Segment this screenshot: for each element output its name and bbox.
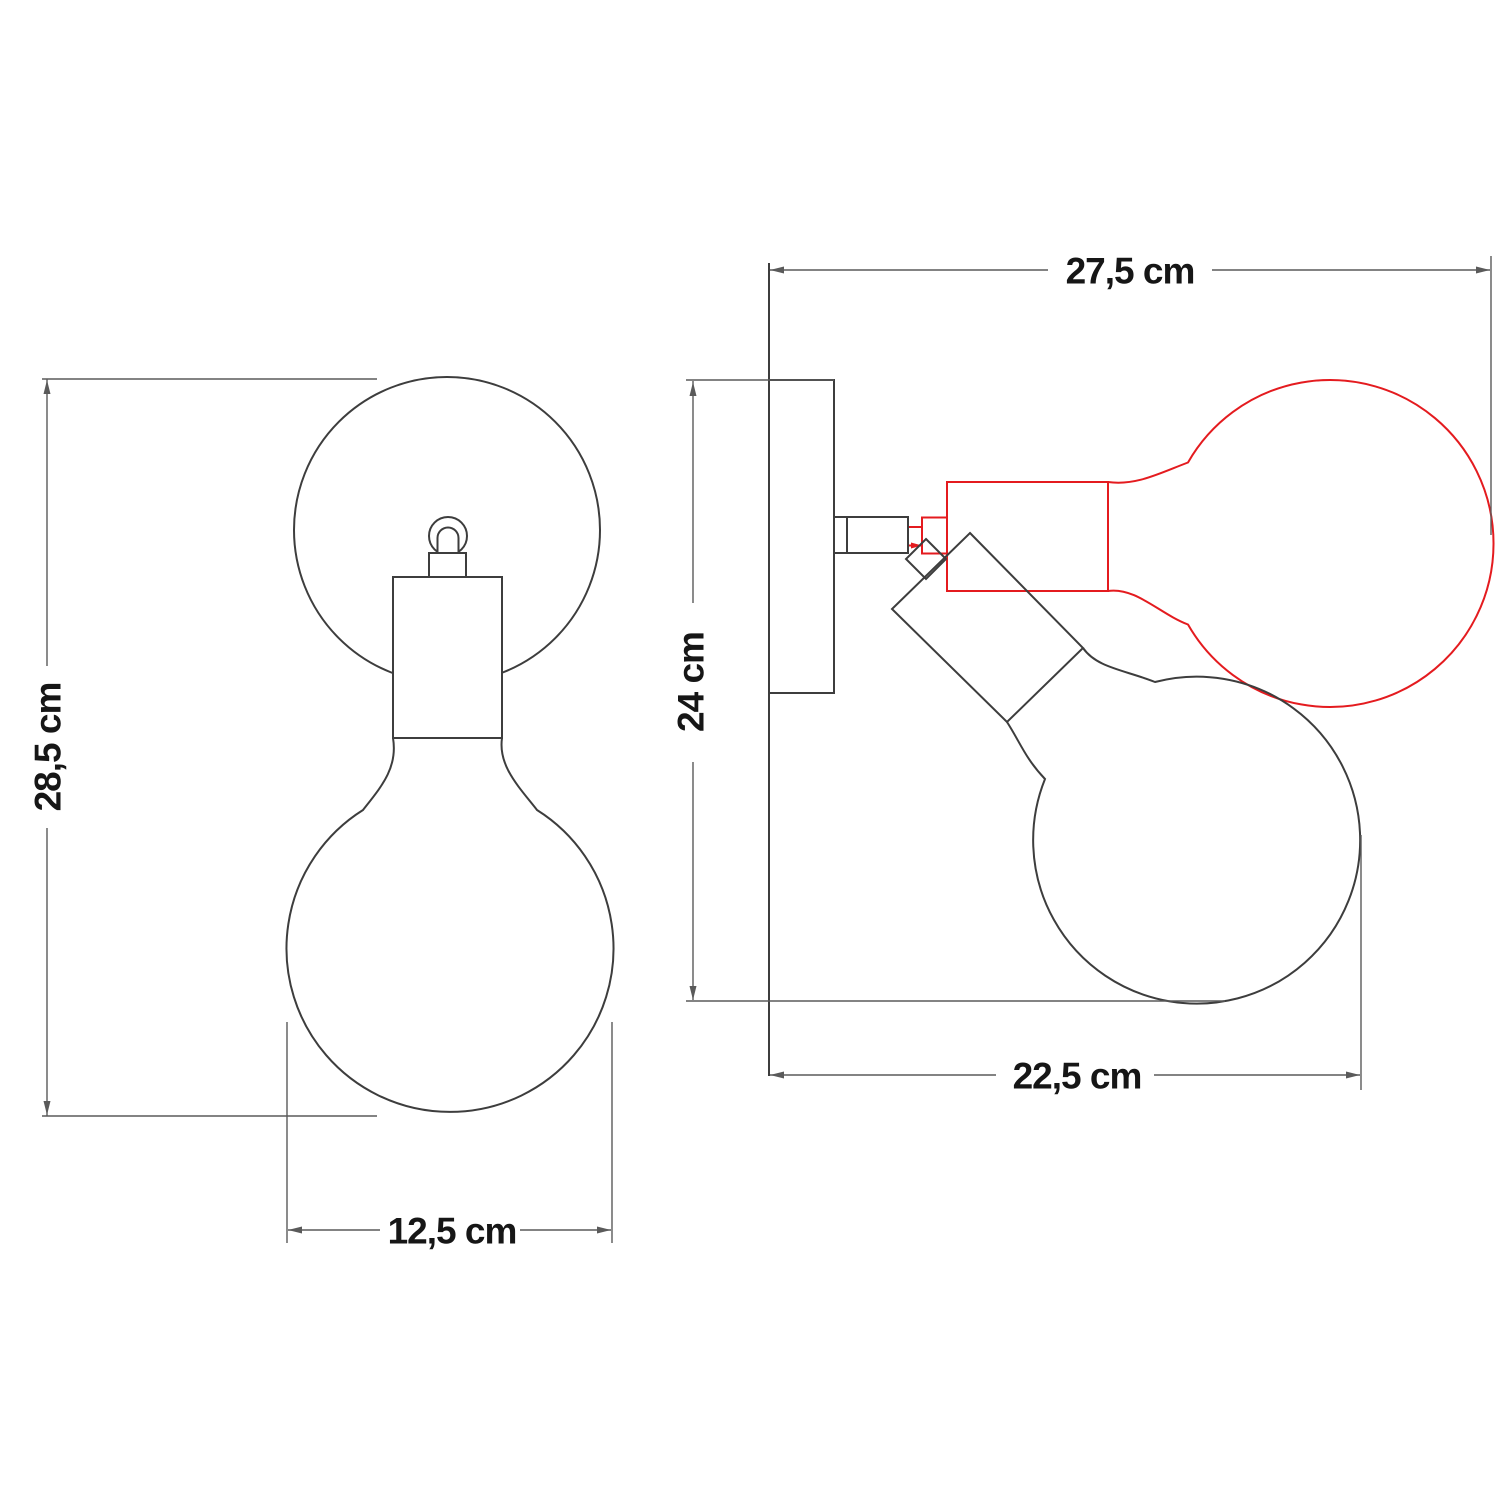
side-view-alt-position: [908, 380, 1494, 707]
dimensions: [42, 256, 1491, 1243]
alt-globe-bulb-side: [1108, 380, 1494, 707]
arrow-left-icon: [770, 1072, 784, 1079]
alt-socket-side: [947, 482, 1108, 591]
pivot-arm-side: [834, 517, 908, 553]
lamp-socket-front: [393, 577, 502, 738]
label-front-width: 12,5 cm: [388, 1211, 517, 1252]
arrow-down-icon: [44, 1101, 51, 1115]
label-front-height: 28,5 cm: [28, 683, 69, 812]
tilted-socket-side: [892, 533, 1083, 722]
arrow-right-icon: [1476, 267, 1490, 274]
front-view: [287, 377, 614, 1112]
arrow-right-icon: [597, 1227, 611, 1234]
lamp-dimension-drawing: 27,5 cm 24 cm 22,5 cm 28,5 cm 12,5 cm: [0, 0, 1500, 1500]
arrow-up-icon: [44, 380, 51, 394]
wall-plate-side: [769, 380, 834, 693]
dimension-front-height: [42, 379, 377, 1116]
dimension-labels: 27,5 cm 24 cm 22,5 cm 28,5 cm 12,5 cm: [28, 251, 1195, 1252]
globe-bulb-front: [287, 738, 614, 1112]
side-view: [769, 263, 1360, 1076]
arrow-up-icon: [690, 382, 697, 396]
arrow-right-icon: [1346, 1072, 1360, 1079]
alt-pivot-link-lines: [908, 527, 922, 546]
arrow-left-icon: [770, 267, 784, 274]
label-side-width: 27,5 cm: [1066, 251, 1195, 292]
dimension-side-height: [686, 380, 1225, 1001]
globe-bulb-side: [1007, 648, 1360, 1004]
dimension-side-width: [770, 256, 1491, 535]
arrow-left-icon: [288, 1227, 302, 1234]
socket-cap-front: [429, 553, 466, 577]
label-side-depth: 22,5 cm: [1013, 1056, 1142, 1097]
dimension-side-depth: [770, 835, 1361, 1090]
label-side-height: 24 cm: [671, 632, 712, 732]
dimension-drawing-page: 27,5 cm 24 cm 22,5 cm 28,5 cm 12,5 cm: [0, 0, 1500, 1500]
arrow-down-icon: [690, 986, 697, 1000]
